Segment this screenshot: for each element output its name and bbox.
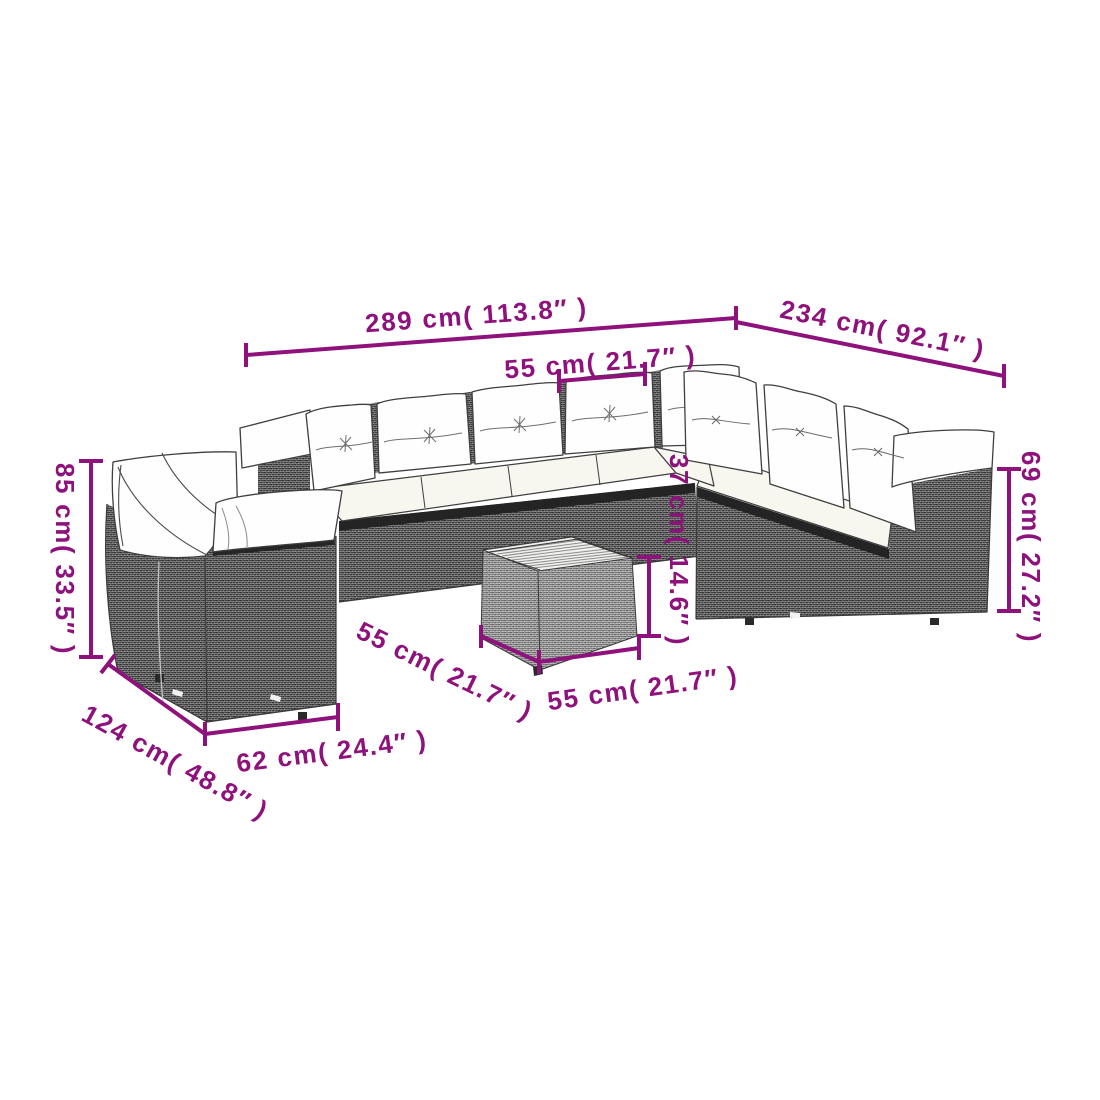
svg-text:85 cm( 33.5″ ): 85 cm( 33.5″ ): [50, 463, 80, 655]
svg-text:69 cm( 27.2″ ): 69 cm( 27.2″ ): [1016, 451, 1046, 643]
svg-text:37 cm( 14.6″ ): 37 cm( 14.6″ ): [664, 454, 694, 646]
